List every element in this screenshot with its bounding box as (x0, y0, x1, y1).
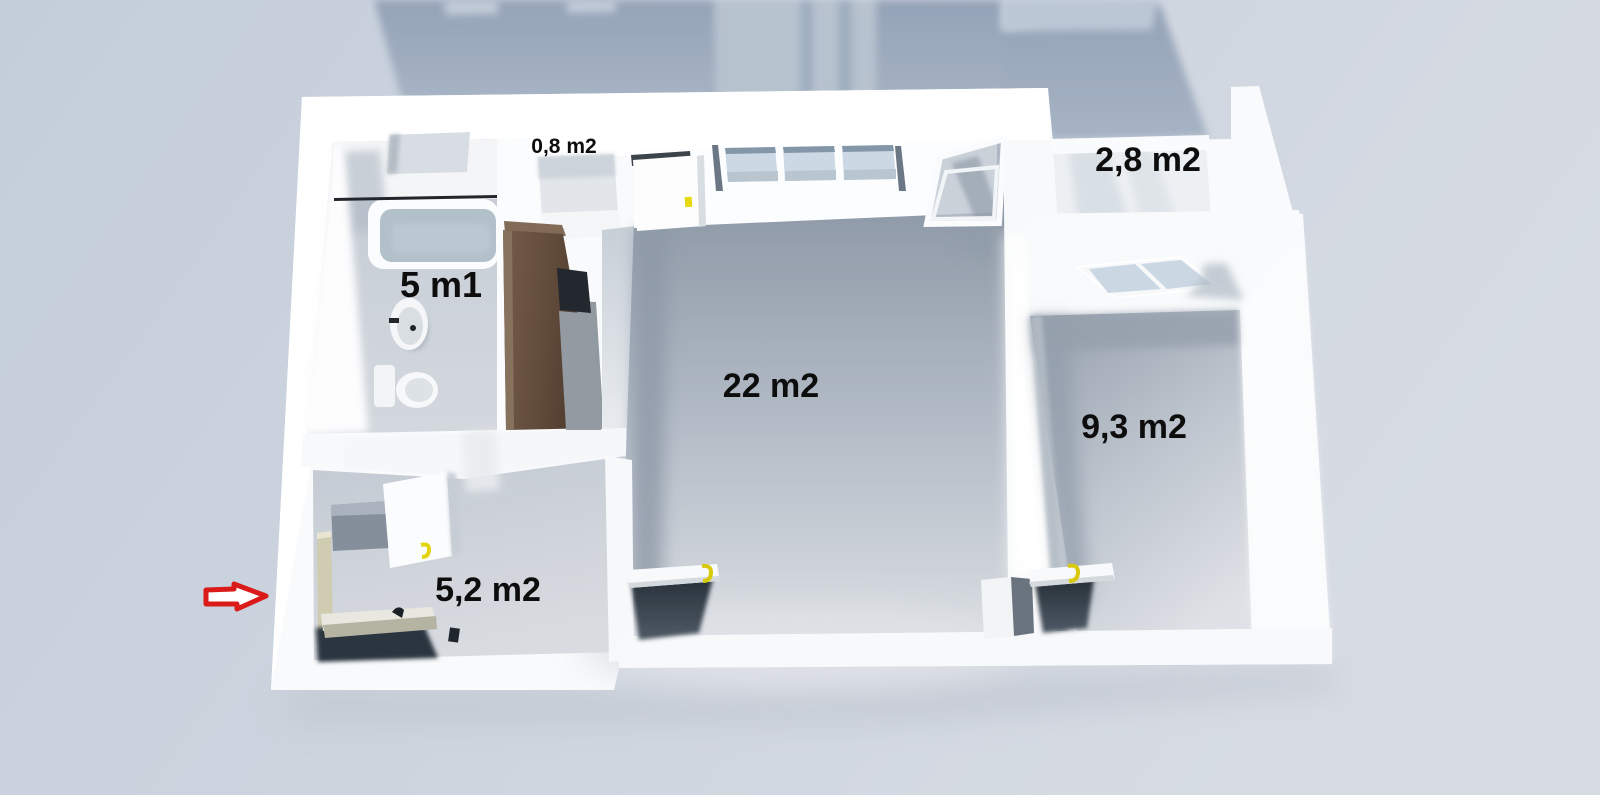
svg-text:9,3 m2: 9,3 m2 (1081, 408, 1187, 446)
svg-text:5,2 m2: 5,2 m2 (435, 571, 541, 609)
svg-text:0,8 m2: 0,8 m2 (531, 135, 596, 158)
svg-text:2,8 m2: 2,8 m2 (1095, 141, 1201, 179)
svg-text:22 m2: 22 m2 (723, 367, 819, 405)
svg-text:5 m1: 5 m1 (400, 264, 482, 305)
